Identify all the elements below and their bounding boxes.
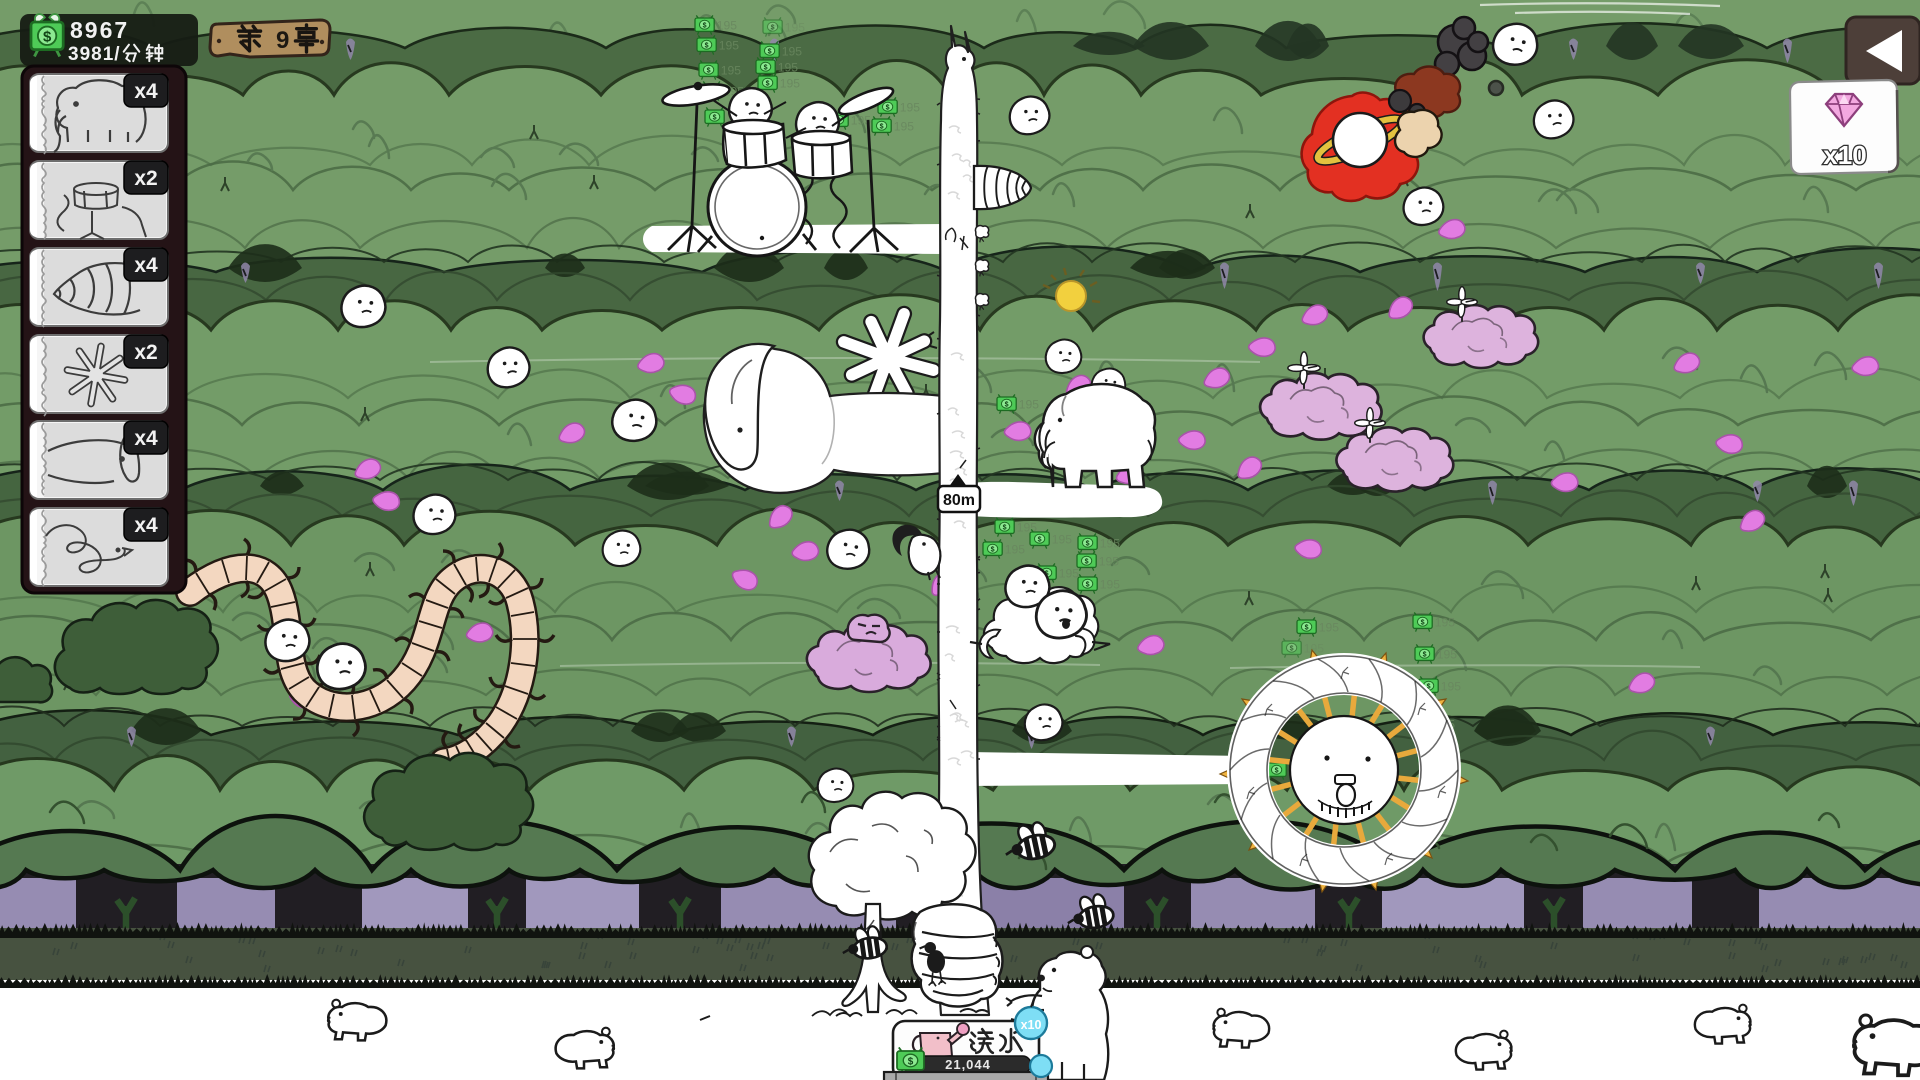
svg-text:195: 195 [1052, 533, 1073, 547]
svg-text:195: 195 [1019, 398, 1040, 412]
svg-text:195: 195 [780, 77, 801, 91]
svg-text:195: 195 [719, 39, 740, 53]
svg-text:195: 195 [785, 21, 806, 35]
svg-text:195: 195 [1441, 680, 1462, 694]
svg-text:195: 195 [1319, 621, 1340, 635]
svg-text:80m: 80m [943, 492, 975, 509]
svg-text:195: 195 [1437, 648, 1458, 662]
svg-text:x10: x10 [1823, 140, 1866, 170]
svg-text:195: 195 [721, 64, 742, 78]
svg-text:195: 195 [1435, 616, 1456, 630]
svg-text:9: 9 [276, 27, 289, 54]
svg-text:x4: x4 [134, 427, 158, 450]
svg-text:195: 195 [717, 19, 738, 33]
svg-text:195: 195 [1100, 578, 1121, 592]
svg-text:195: 195 [1059, 567, 1080, 581]
svg-text:x4: x4 [134, 514, 158, 537]
svg-text:195: 195 [1099, 555, 1120, 569]
svg-text:195: 195 [1100, 537, 1121, 551]
svg-text:x10: x10 [1021, 1018, 1042, 1032]
svg-text:x2: x2 [134, 167, 157, 190]
svg-text:8967: 8967 [70, 17, 129, 43]
svg-text:x2: x2 [134, 341, 157, 364]
svg-text:$: $ [43, 29, 52, 46]
svg-text:3981/: 3981/ [68, 44, 121, 65]
svg-text:x4: x4 [134, 254, 158, 277]
svg-text:195: 195 [894, 120, 915, 134]
svg-text:195: 195 [778, 61, 799, 75]
svg-text:195: 195 [782, 45, 803, 59]
svg-text:21,044: 21,044 [945, 1057, 991, 1072]
svg-text:x4: x4 [134, 80, 158, 103]
svg-text:195: 195 [1005, 543, 1026, 557]
svg-text:195: 195 [900, 101, 921, 115]
